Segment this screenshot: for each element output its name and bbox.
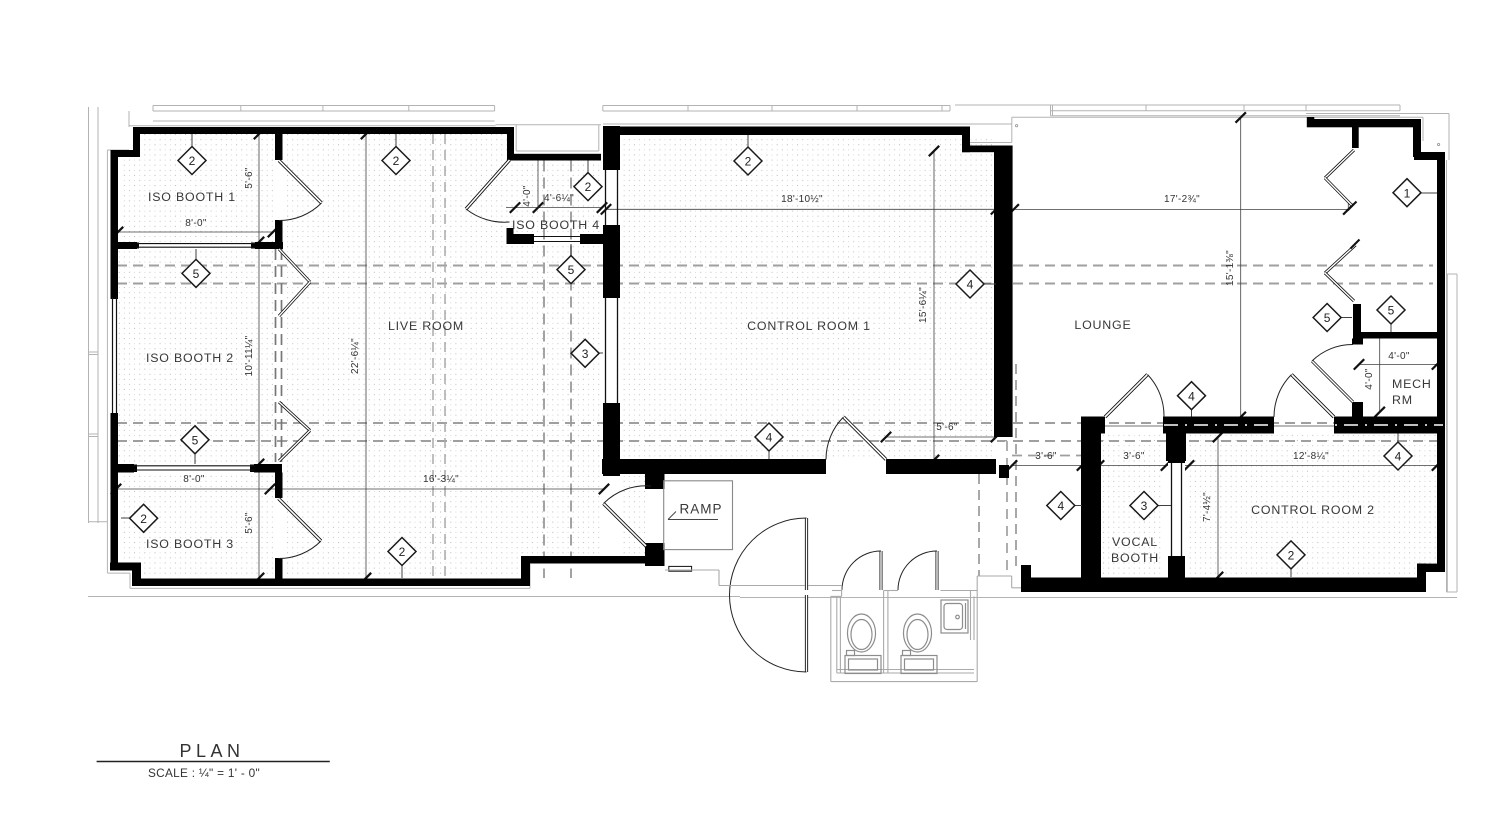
svg-text:16'-3¼": 16'-3¼" (423, 473, 459, 485)
svg-text:18'-10½": 18'-10½" (781, 194, 823, 205)
svg-text:12'-8¼": 12'-8¼" (1293, 450, 1329, 462)
svg-text:2: 2 (1288, 549, 1295, 563)
svg-text:15'-6¼": 15'-6¼" (917, 287, 929, 323)
svg-text:VOCAL: VOCAL (1112, 535, 1158, 549)
svg-text:2: 2 (393, 154, 400, 168)
svg-text:SCALE : ¼" = 1' - 0": SCALE : ¼" = 1' - 0" (148, 766, 260, 780)
svg-text:8'-0": 8'-0" (183, 474, 205, 485)
svg-text:ISO BOOTH 3: ISO BOOTH 3 (146, 537, 234, 551)
svg-text:2: 2 (140, 512, 147, 526)
svg-text:ISO BOOTH 2: ISO BOOTH 2 (146, 351, 234, 365)
svg-text:4'-0": 4'-0" (1364, 368, 1375, 390)
svg-text:4'-0": 4'-0" (1388, 351, 1410, 362)
svg-text:BOOTH: BOOTH (1111, 551, 1159, 565)
svg-text:5: 5 (1324, 311, 1331, 325)
svg-text:5: 5 (192, 433, 199, 447)
svg-text:4'-0": 4'-0" (522, 185, 533, 207)
svg-text:4: 4 (1057, 499, 1064, 513)
svg-text:2: 2 (745, 155, 752, 169)
svg-text:4'-6¼": 4'-6¼" (544, 192, 574, 204)
svg-text:PLAN: PLAN (179, 741, 244, 761)
svg-text:10'-11¼": 10'-11¼" (243, 335, 255, 376)
svg-text:3'-6": 3'-6" (1035, 451, 1057, 462)
svg-text:3'-6": 3'-6" (1123, 451, 1145, 462)
svg-text:2: 2 (399, 545, 406, 559)
svg-text:5'-6": 5'-6" (936, 422, 958, 433)
svg-text:17'-2¾": 17'-2¾" (1164, 194, 1200, 205)
svg-text:LOUNGE: LOUNGE (1074, 318, 1131, 332)
svg-text:4: 4 (766, 431, 773, 445)
svg-text:MECH: MECH (1392, 377, 1432, 391)
svg-text:1: 1 (1404, 186, 1411, 200)
svg-text:LIVE ROOM: LIVE ROOM (388, 319, 464, 333)
svg-text:15'-1⅜": 15'-1⅜" (1225, 250, 1236, 286)
svg-text:3: 3 (1141, 499, 1148, 513)
svg-text:CONTROL ROOM 2: CONTROL ROOM 2 (1251, 503, 1375, 517)
svg-text:4: 4 (1188, 389, 1195, 403)
svg-text:3: 3 (582, 347, 589, 361)
svg-text:5: 5 (193, 267, 200, 281)
svg-text:5'-6": 5'-6" (244, 512, 255, 534)
svg-text:CONTROL ROOM 1: CONTROL ROOM 1 (747, 319, 871, 333)
svg-text:ISO BOOTH 1: ISO BOOTH 1 (148, 190, 236, 204)
svg-text:ISO BOOTH 4: ISO BOOTH 4 (512, 218, 600, 232)
svg-text:22'-6¼": 22'-6¼" (349, 338, 361, 374)
svg-text:8'-0": 8'-0" (185, 218, 207, 229)
svg-text:RAMP: RAMP (679, 502, 722, 517)
svg-text:5'-6": 5'-6" (244, 167, 255, 189)
svg-text:2: 2 (585, 180, 592, 194)
svg-text:2: 2 (189, 154, 196, 168)
svg-text:4: 4 (1395, 450, 1402, 464)
svg-text:RM: RM (1392, 393, 1413, 407)
svg-text:4: 4 (967, 278, 974, 292)
svg-text:7'-4½": 7'-4½" (1202, 492, 1213, 522)
svg-text:5: 5 (568, 263, 575, 277)
svg-text:5: 5 (1388, 304, 1395, 318)
